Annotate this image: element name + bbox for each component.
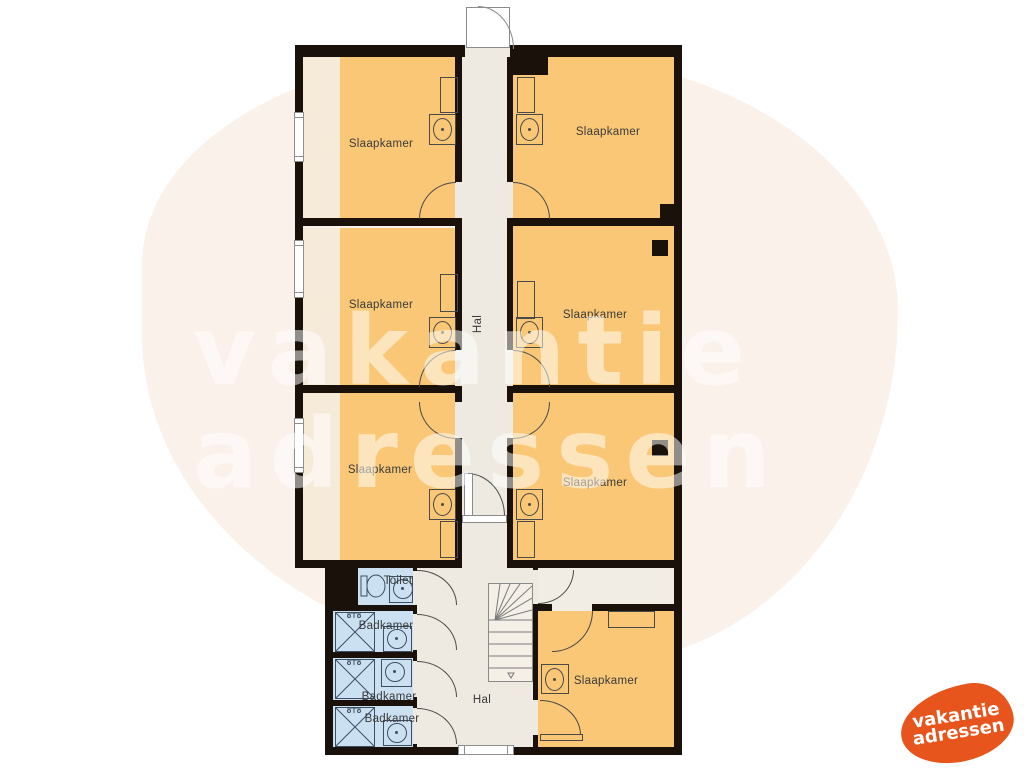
chimney-block: [652, 440, 668, 456]
sink-icon: [429, 114, 456, 145]
room-label: Slaapkamer: [563, 309, 627, 321]
staircase-icon: [488, 583, 533, 682]
room-label: Badkamer: [359, 620, 414, 632]
wall: [455, 57, 462, 568]
door-opening: [533, 700, 538, 735]
sink-icon: [516, 114, 543, 145]
room-label: Hal: [473, 694, 491, 706]
room-label: Badkamer: [362, 691, 417, 703]
wall: [333, 652, 413, 658]
wall: [303, 218, 462, 226]
door-threshold: [462, 515, 507, 523]
sink-icon: [516, 489, 543, 520]
room-shade-strip: [303, 393, 340, 560]
room-label: Hal: [472, 315, 484, 333]
door-opening: [552, 604, 592, 611]
closet-outline: [440, 274, 458, 312]
room-label: Badkamer: [365, 713, 420, 725]
closet-outline: [440, 521, 458, 558]
room-label: Slaapkamer: [563, 477, 627, 489]
closet-outline: [440, 77, 458, 113]
wall: [513, 57, 548, 75]
sink-icon: [516, 317, 543, 348]
logo-text: vakantie adressen: [909, 700, 1006, 748]
room-label: Slaapkamer: [576, 126, 640, 138]
window-icon: [458, 745, 514, 755]
wall: [507, 218, 676, 226]
wall: [358, 605, 413, 611]
room-label: Slaapkamer: [348, 464, 412, 476]
door-opening: [455, 402, 462, 438]
wall: [507, 560, 676, 568]
room-shade-strip: [303, 228, 340, 385]
vakantieadressen-logo: vakantie adressen: [894, 677, 1019, 771]
window-icon: [294, 240, 304, 298]
door-opening: [455, 182, 462, 218]
sink-icon: [429, 317, 456, 348]
wall: [674, 45, 682, 755]
door-leaf: [540, 734, 583, 741]
furniture-outline: [608, 611, 655, 628]
sink-icon: [381, 659, 412, 687]
chimney-block: [652, 240, 668, 256]
window-icon: [294, 112, 304, 162]
floorplan-page: { "watermark": { "line1": "vakantie", "l…: [0, 0, 1024, 768]
sink-icon: [541, 664, 569, 694]
door-leaf: [464, 473, 473, 516]
door-opening: [455, 350, 462, 386]
wall: [660, 204, 682, 226]
wall: [507, 57, 513, 568]
closet-outline: [517, 521, 535, 558]
room-label: Slaapkamer: [349, 299, 413, 311]
closet-outline: [517, 77, 535, 113]
wall: [325, 560, 358, 611]
window-icon: [294, 418, 304, 473]
room-label: Slaapkamer: [349, 138, 413, 150]
room-shade-strip: [303, 57, 340, 220]
shower-icon: [335, 612, 375, 652]
closet-outline: [517, 281, 535, 319]
sink-icon: [429, 489, 456, 520]
room-label: Toilet: [384, 575, 413, 587]
room-label: Slaapkamer: [574, 675, 638, 687]
